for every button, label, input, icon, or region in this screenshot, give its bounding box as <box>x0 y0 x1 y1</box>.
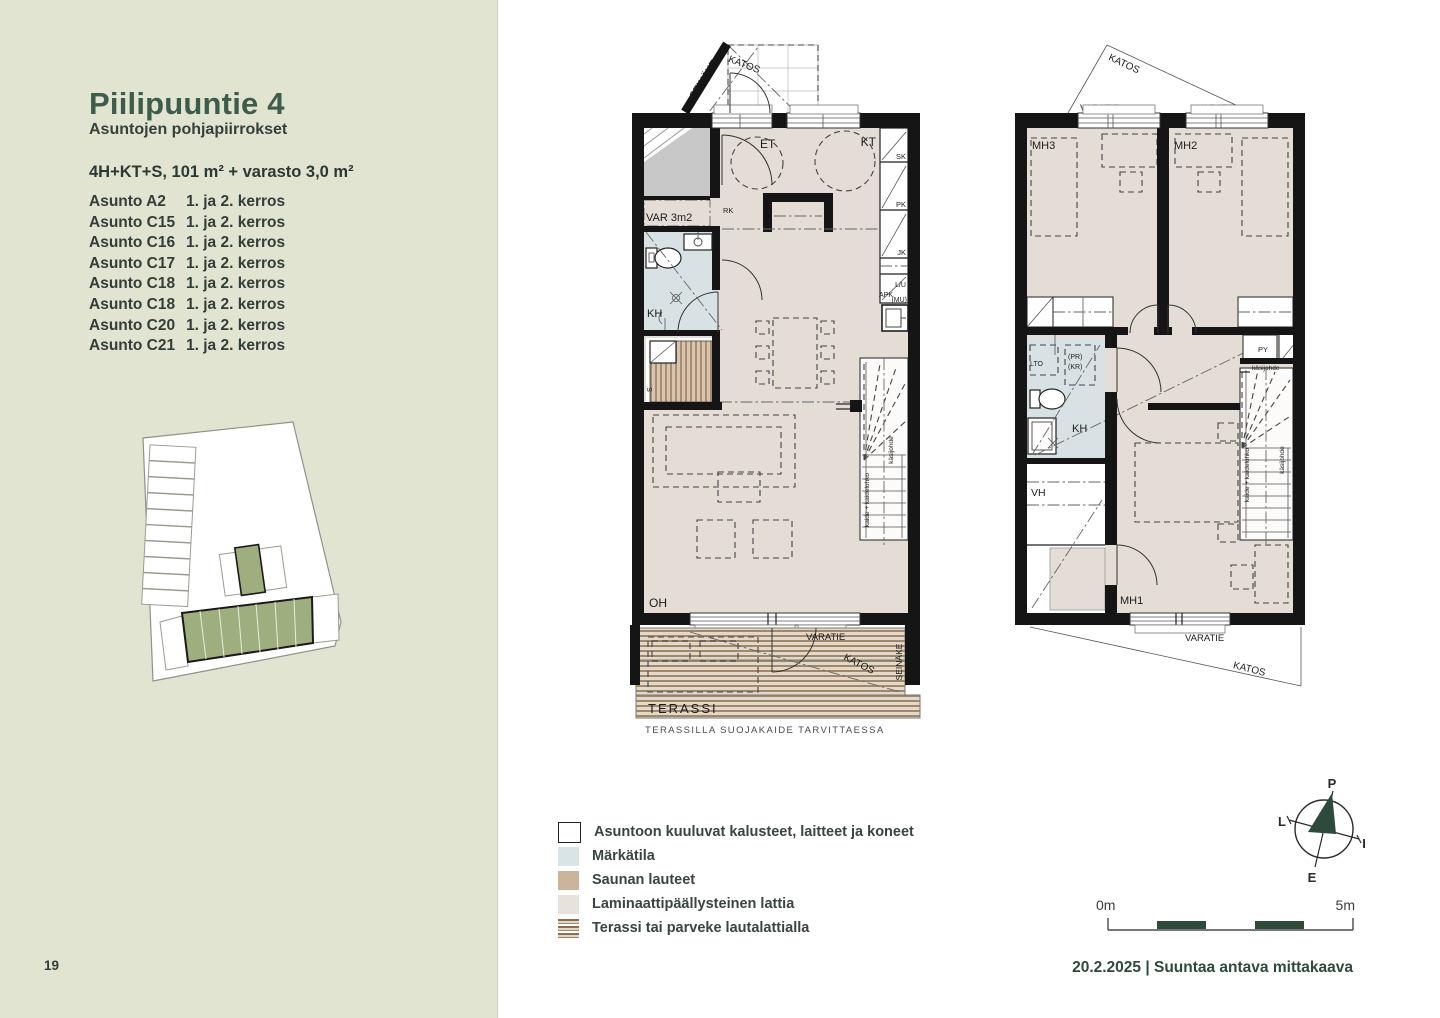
label-mh1: MH1 <box>1120 595 1143 607</box>
scale-end-label: 5m <box>1336 897 1355 913</box>
label-katos-bottom-f2: KATOS <box>1232 660 1267 679</box>
apartment-list-item: Asunto C181. ja 2. kerros <box>89 295 285 316</box>
legend-swatch-wet-room <box>558 847 579 866</box>
label-rk: RK <box>723 206 733 215</box>
legend-label: Asuntoon kuuluvat kalusteet, laitteet ja… <box>594 824 914 840</box>
apartment-floors: 1. ja 2. kerros <box>186 192 285 213</box>
label-pr: (PR) <box>1068 354 1082 361</box>
legend-swatch-sauna-bench <box>558 871 579 890</box>
label-kr: (KR) <box>1068 364 1082 371</box>
footer-date-note: 20.2.2025 | Suuntaa antava mittakaava <box>1072 959 1353 977</box>
label-jk: JK <box>897 248 906 257</box>
floor-plan-1: SEINÄKE KATOS SK PK JK L/U APK (MU) <box>560 35 940 745</box>
label-mh3: MH3 <box>1032 140 1055 152</box>
apartment-floors: 1. ja 2. kerros <box>186 295 285 316</box>
page-title: Piilipuuntie 4 <box>89 86 285 122</box>
legend-label: Märkätila <box>592 848 655 864</box>
scale-segment-2 <box>1255 921 1304 929</box>
apartment-name: Asunto A2 <box>89 192 186 213</box>
label-sk: SK <box>896 152 906 161</box>
page-subtitle: Asuntojen pohjapiirrokset <box>89 121 287 139</box>
apartment-floors: 1. ja 2. kerros <box>186 254 285 275</box>
label-pk: PK <box>896 200 906 209</box>
apartment-floors: 1. ja 2. kerros <box>186 336 285 357</box>
legend-swatch-deck <box>558 919 579 938</box>
legend-item: Märkätila <box>558 844 914 868</box>
floor1-seinake-wall <box>685 44 727 112</box>
apartment-list-item: Asunto C211. ja 2. kerros <box>89 336 285 357</box>
floor-plan-2: KATOS VARATIE VARATIE <box>1000 30 1320 730</box>
label-kaide-f2: kaide + kaidelohko <box>1244 448 1251 502</box>
label-oh: OH <box>649 596 667 610</box>
apartment-name: Asunto C16 <box>89 233 186 254</box>
sidebar: Piilipuuntie 4 Asuntojen pohjapiirrokset… <box>0 0 498 1018</box>
legend-swatch-laminate <box>558 895 579 914</box>
label-kh-f1: KH <box>647 308 662 320</box>
compass-label-south: E <box>1308 870 1317 885</box>
apartment-list-item: Asunto C201. ja 2. kerros <box>89 316 285 337</box>
page-number: 19 <box>44 958 59 973</box>
apartment-floors: 1. ja 2. kerros <box>186 213 285 234</box>
compass-north-needle <box>1308 793 1336 834</box>
apartment-floors: 1. ja 2. kerros <box>186 233 285 254</box>
label-kasijohde-side-f2: käsijohde <box>1279 446 1286 474</box>
label-varatie-bottom-f2: VARATIE <box>1185 633 1224 644</box>
label-kasijohde-top-f2: käsijohde <box>1252 365 1280 372</box>
legend: Asuntoon kuuluvat kalusteet, laitteet ja… <box>558 820 914 940</box>
label-kasijohde-f1: käsijohde <box>888 436 895 464</box>
scale-segment-1 <box>1157 921 1206 929</box>
label-seinake-bottom-f1: SEINÄKE <box>894 643 904 680</box>
label-kaide-f1: kaide + kaidelohko <box>864 473 871 527</box>
label-varatie-f1: VARATIE <box>806 632 845 643</box>
floor1-caption: TERASSILLA SUOJAKAIDE TARVITTAESSA <box>645 725 885 736</box>
compass-label-west: L <box>1278 814 1286 829</box>
apartment-list-item: Asunto C181. ja 2. kerros <box>89 274 285 295</box>
label-lu: L/U <box>895 282 906 289</box>
legend-label: Terassi tai parveke lautalattialla <box>592 920 809 936</box>
label-mh2: MH2 <box>1174 140 1197 152</box>
label-kt: KT <box>861 135 877 149</box>
apartment-floors: 1. ja 2. kerros <box>186 274 285 295</box>
scale-bar: 0m 5m <box>1088 893 1363 938</box>
label-mu: (MU) <box>891 297 907 304</box>
apartment-list-item: Asunto C171. ja 2. kerros <box>89 254 285 275</box>
apartment-list-item: Asunto A21. ja 2. kerros <box>89 192 285 213</box>
apartment-list: Asunto A21. ja 2. kerros Asunto C151. ja… <box>89 192 285 357</box>
legend-item: Laminaattipäällysteinen lattia <box>558 892 914 916</box>
compass-label-north: P <box>1328 776 1337 791</box>
legend-item: Terassi tai parveke lautalattialla <box>558 916 914 940</box>
apartment-name: Asunto C15 <box>89 213 186 234</box>
legend-item: Saunan lauteet <box>558 868 914 892</box>
label-py: PY <box>1258 345 1268 354</box>
apartment-name: Asunto C18 <box>89 295 186 316</box>
apartment-name: Asunto C17 <box>89 254 186 275</box>
apartment-spec: 4H+KT+S, 101 m² + varasto 3,0 m² <box>89 163 354 182</box>
apartment-floors: 1. ja 2. kerros <box>186 316 285 337</box>
apartment-list-item: Asunto C151. ja 2. kerros <box>89 213 285 234</box>
apartment-name: Asunto C21 <box>89 336 186 357</box>
floor1-sink-icon <box>684 232 712 250</box>
compass-rose: P L I E <box>1275 772 1375 892</box>
label-terassi: TERASSI <box>648 701 718 716</box>
label-var: VAR 3m2 <box>646 212 692 224</box>
legend-label: Laminaattipäällysteinen lattia <box>592 896 794 912</box>
label-vh: VH <box>1031 487 1046 499</box>
site-parking-rows <box>142 445 196 607</box>
legend-item: Asuntoon kuuluvat kalusteet, laitteet ja… <box>558 820 914 844</box>
apartment-list-item: Asunto C161. ja 2. kerros <box>89 233 285 254</box>
label-lto: LTO <box>1030 361 1044 368</box>
legend-swatch-furniture <box>558 822 581 843</box>
label-s-f1: S <box>647 387 654 392</box>
scale-start-label: 0m <box>1096 897 1115 913</box>
label-katos-top-f2: KATOS <box>1107 52 1142 76</box>
site-plan-map <box>130 415 360 700</box>
apartment-name: Asunto C18 <box>89 274 186 295</box>
label-et: ET <box>760 137 776 151</box>
apartment-name: Asunto C20 <box>89 316 186 337</box>
floor1-toilet-icon <box>646 248 681 268</box>
compass-label-east: I <box>1362 836 1366 851</box>
legend-label: Saunan lauteet <box>592 872 695 888</box>
